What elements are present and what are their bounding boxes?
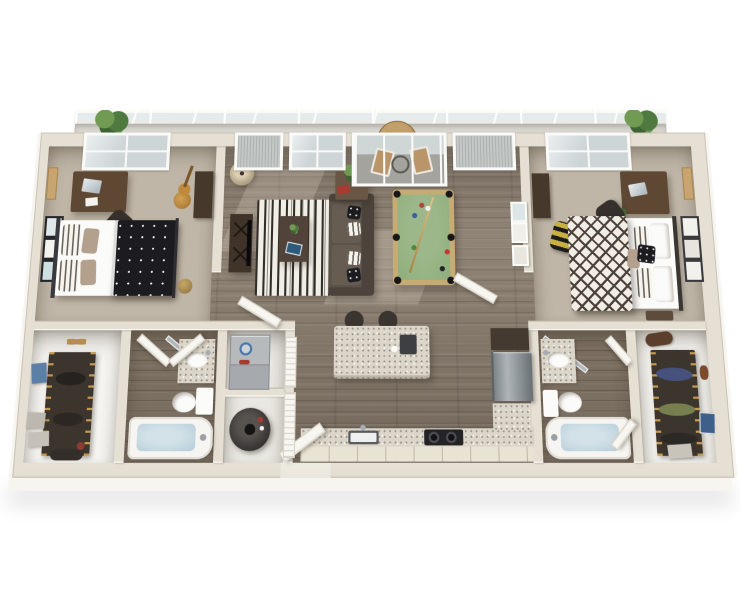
accent-pillow [81, 228, 100, 254]
utility-door [284, 337, 297, 388]
faucet [543, 350, 549, 355]
lamp-finial [240, 171, 244, 175]
sofa-pillow [347, 251, 362, 266]
bed [569, 218, 681, 309]
heater-valve-red [258, 417, 264, 423]
living-window [289, 133, 346, 171]
faucet [205, 350, 211, 355]
wall-art-frame [680, 216, 700, 238]
pool-pocket [394, 277, 401, 284]
bed [54, 220, 177, 296]
bath-water [136, 424, 196, 451]
desk [70, 171, 128, 212]
shoes [67, 337, 87, 347]
bedroom2-window [545, 133, 632, 171]
wall-hall-right [528, 321, 706, 331]
living-window-screen [234, 133, 284, 171]
wall-art-frame [684, 260, 705, 282]
pool-ball-red [419, 203, 424, 208]
balcony-plant-right [618, 110, 664, 134]
washer-dial [239, 342, 252, 355]
washer-dryer-stack [229, 335, 271, 390]
corner-counter [493, 403, 533, 430]
pool-ball-green [411, 245, 416, 250]
black-accent-pillow [637, 244, 656, 264]
floor-plan-render [0, 0, 740, 592]
burner [446, 432, 457, 443]
entry-threshold [280, 463, 330, 478]
refrigerator [491, 352, 533, 401]
tv-console [228, 214, 253, 272]
duffel-bag-dark [50, 449, 83, 461]
vanity-sink [186, 352, 208, 367]
dresser [193, 171, 213, 218]
sofa-backrest [362, 200, 375, 290]
pool-pocket [446, 191, 453, 198]
sofa-pillow [347, 222, 362, 237]
leaning-art-frame [510, 202, 527, 223]
toilet-tank [195, 388, 213, 415]
door-mullions [355, 135, 445, 183]
kitchen-island [334, 326, 430, 379]
storage-box [28, 431, 49, 447]
burner [428, 432, 439, 443]
blue-art [699, 412, 716, 435]
pillow [58, 260, 79, 292]
leaning-art-frame [511, 222, 528, 243]
pool-ball-blue [412, 213, 417, 218]
pool-ball-white [425, 206, 430, 211]
leaning-art-frame [512, 245, 529, 266]
bath-water [560, 424, 620, 451]
dresser [532, 173, 551, 218]
hanging-clothes-rod [650, 350, 703, 456]
faucet [360, 425, 365, 431]
pillow [653, 266, 674, 302]
storage-box [667, 443, 693, 459]
pillow [636, 268, 653, 298]
coffee-maker [400, 335, 417, 355]
kitchen-counter [300, 428, 532, 446]
vanity [540, 339, 576, 383]
wall-hall-left [34, 321, 295, 331]
garment [52, 412, 83, 426]
living-window-screen [452, 133, 516, 171]
sink-basin [350, 433, 376, 442]
pillow [61, 224, 82, 255]
notebook [85, 197, 98, 206]
blue-bin [31, 362, 46, 384]
pool-table [392, 190, 455, 286]
tub-faucet [551, 434, 558, 441]
bathtub [127, 417, 214, 459]
dryer-seam [230, 364, 268, 365]
sliding-glass-door [352, 133, 448, 187]
diamond-lattice-duvet [567, 216, 633, 311]
red-book [337, 184, 350, 194]
sofa-pillow [346, 267, 361, 283]
sofa-pillow [347, 205, 362, 220]
heater-valve-white [260, 426, 264, 431]
cabinet-front [300, 447, 533, 462]
garment-dark [660, 433, 698, 444]
hanging-clothes-rod [41, 352, 96, 456]
cooktop [424, 429, 463, 445]
toilet-tank [543, 390, 559, 417]
sofa [328, 194, 374, 296]
mug [391, 346, 397, 353]
toilet-bowl [558, 392, 583, 412]
laptop [628, 182, 648, 197]
mask [699, 365, 709, 379]
laptop [81, 178, 102, 194]
garment-olive [658, 403, 696, 415]
table-plant [288, 223, 300, 234]
storage-box [26, 412, 46, 429]
bedside-tray [645, 311, 673, 321]
balcony-glass-railing [75, 110, 666, 124]
accent-pillow [80, 259, 96, 285]
vanity-sink [547, 352, 569, 367]
pool-pocket [393, 234, 400, 241]
coffee-table [279, 216, 309, 262]
utility-door [283, 392, 296, 458]
desk [620, 171, 670, 214]
pool-ball-black [440, 266, 445, 271]
pool-pocket [447, 234, 454, 241]
pool-ball-red2 [445, 249, 450, 254]
upper-cabinet [490, 328, 529, 350]
garment-navy [656, 367, 693, 382]
bedroom1-window [82, 133, 171, 171]
garment [55, 372, 86, 385]
television [246, 220, 252, 266]
heater-vent [244, 424, 255, 435]
wall-art-frame [682, 238, 702, 260]
pool-pocket [393, 191, 400, 198]
exterior-wall-face [8, 478, 732, 491]
tub-faucet [200, 434, 207, 441]
apartment-plan [6, 110, 734, 510]
tablet [285, 242, 303, 257]
polka-dot-duvet [110, 220, 177, 296]
kitchen-sink [348, 431, 378, 445]
